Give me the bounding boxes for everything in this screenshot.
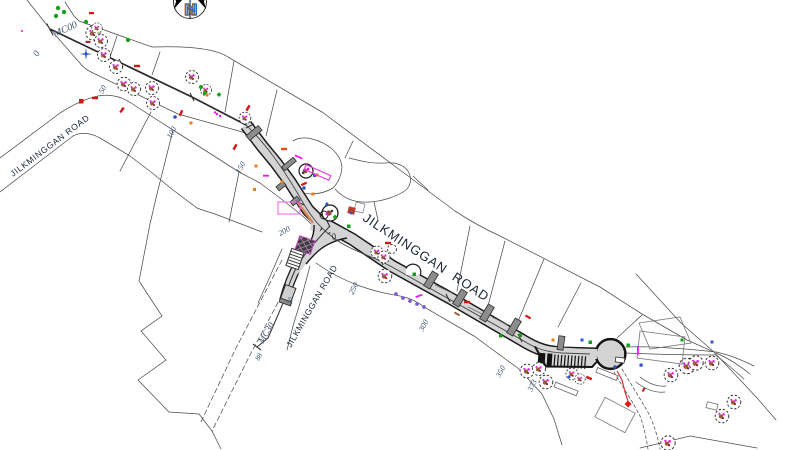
svg-text:N: N: [186, 2, 198, 19]
